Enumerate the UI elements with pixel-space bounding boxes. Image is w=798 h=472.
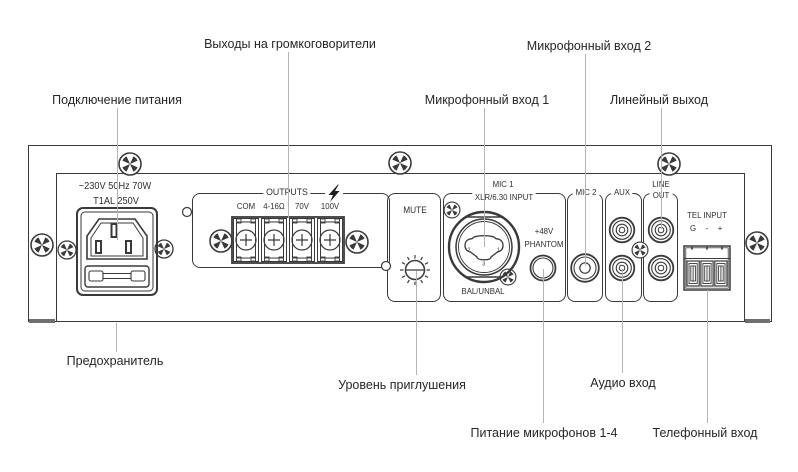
leader-line-mic1 xyxy=(484,108,485,247)
leader-line-speaker-outputs xyxy=(288,52,289,218)
rivet-icon xyxy=(183,208,192,217)
callout-mute-level: Уровень приглушения xyxy=(338,378,466,392)
rivet-icon xyxy=(382,262,391,271)
leader-line-fuse xyxy=(116,323,117,352)
mute-label: MUTE xyxy=(403,205,426,215)
leader-line-power xyxy=(117,108,118,240)
screw-icon xyxy=(346,231,368,253)
mic1-title: MIC 1 xyxy=(493,180,514,190)
lightning-icon xyxy=(325,185,343,203)
phantom-voltage-label: +48V xyxy=(535,227,553,237)
mic1-mode-label: BAL/UNBAL xyxy=(461,287,504,297)
leader-line-mic2 xyxy=(585,54,586,266)
speaker-terminal-block xyxy=(232,217,344,263)
outputs-terminal-label-ohm: 4-16Ω xyxy=(263,202,285,212)
outputs-terminal-label-70v: 70V xyxy=(295,202,309,212)
callout-mic2: Микрофонный вход 2 xyxy=(527,39,651,53)
tel-terminal-block xyxy=(684,246,730,290)
tel-title: TEL INPUT xyxy=(687,211,727,221)
screw-icon xyxy=(632,242,648,258)
screw-icon xyxy=(210,230,232,252)
panel-art: 2 1 3 xyxy=(0,0,798,472)
mic2-label: MIC 2 xyxy=(573,188,599,198)
callout-mic1: Микрофонный вход 1 xyxy=(425,93,549,107)
mic1-subtitle: XLR/6.30 INPUT xyxy=(472,193,536,203)
outputs-terminal-label-100v: 100V xyxy=(321,202,339,212)
xlr-pin1-label: 1 xyxy=(497,248,500,254)
tel-terminal-minus: - xyxy=(706,224,709,234)
leader-line-phantom xyxy=(543,269,544,423)
lineout-rca-bottom xyxy=(649,256,674,281)
callout-speaker-outputs: Выходы на громкоговорители xyxy=(204,37,376,51)
screw-icon xyxy=(746,232,768,254)
xlr-pin2-label: 2 xyxy=(468,248,471,254)
callout-phantom-power: Питание микрофонов 1-4 xyxy=(470,426,617,440)
tel-terminal-g: G xyxy=(690,224,696,234)
leader-line-tel xyxy=(707,290,708,423)
fuse-drawer xyxy=(85,266,149,287)
screw-icon xyxy=(58,241,76,259)
aux-rca-top xyxy=(610,218,635,243)
screw-icon xyxy=(119,153,141,175)
callout-power: Подключение питания xyxy=(52,93,182,107)
aux-label: AUX xyxy=(611,188,633,198)
rear-panel-diagram: 2 1 3 xyxy=(0,0,798,472)
callout-lineout: Линейный выход xyxy=(610,93,708,107)
tel-terminal-plus: + xyxy=(718,224,723,234)
outputs-terminal-label-com: COM xyxy=(237,202,255,212)
phantom-label: PHANTOM xyxy=(525,240,564,250)
leader-line-audio-in xyxy=(622,269,623,373)
screw-icon xyxy=(31,234,53,256)
screw-icon xyxy=(444,202,460,218)
leader-line-mute xyxy=(416,271,417,375)
xlr-pin3-label: 3 xyxy=(482,262,485,268)
screw-icon xyxy=(389,152,411,174)
callout-tel-in: Телефонный вход xyxy=(653,426,758,440)
callout-fuse: Предохранитель xyxy=(67,354,164,368)
callout-audio-in: Аудио вход xyxy=(590,376,655,390)
leader-line-lineout xyxy=(661,108,662,229)
power-rating-label: ~230V 50Hz 70W xyxy=(79,181,151,193)
